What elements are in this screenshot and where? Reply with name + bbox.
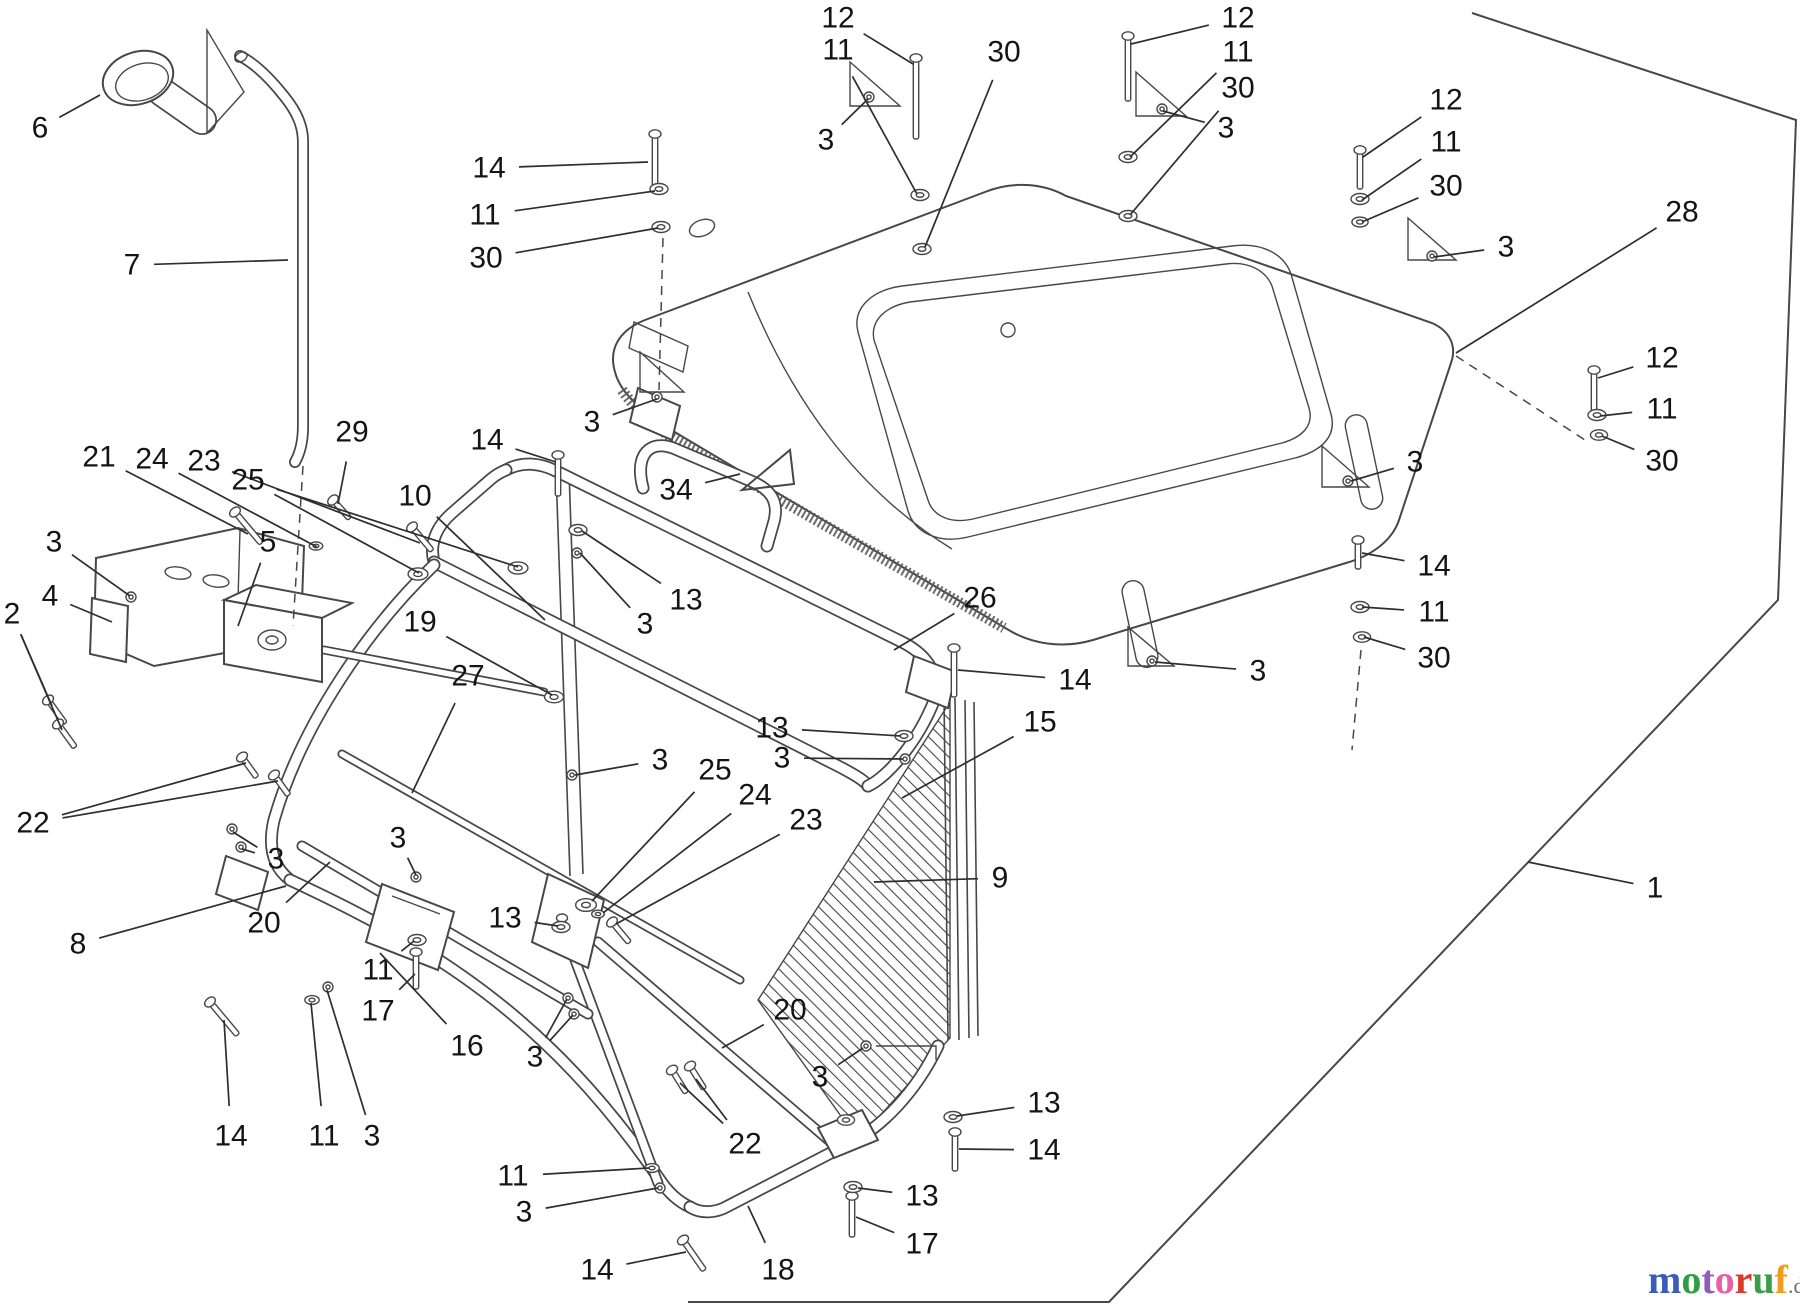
callout-label: 25 xyxy=(231,464,264,497)
callout-label: 9 xyxy=(992,862,1009,895)
nut-icon xyxy=(227,824,237,834)
callout-label: 34 xyxy=(659,474,692,507)
bolt-icon xyxy=(1354,146,1366,189)
bolt-icon xyxy=(1588,366,1600,413)
callout-label: 4 xyxy=(42,580,59,613)
callout-label: 3 xyxy=(364,1120,381,1153)
callout-leader xyxy=(626,1252,686,1264)
callout-label: 3 xyxy=(1218,112,1235,145)
callout-label: 1 xyxy=(1647,872,1664,905)
callout-label: 13 xyxy=(1027,1087,1060,1120)
callout-label: 30 xyxy=(1645,445,1678,478)
callout-label: 5 xyxy=(260,526,277,559)
callout-label: 30 xyxy=(1429,170,1462,203)
watermark-letter: o xyxy=(1715,1257,1735,1302)
washer-icon xyxy=(944,1112,962,1123)
hood-vent-hole xyxy=(687,216,717,240)
callout-label: 3 xyxy=(46,526,63,559)
callout-label: 11 xyxy=(469,199,500,232)
callout-leader xyxy=(59,95,100,117)
bolt-icon xyxy=(846,1192,858,1237)
callout-label: 13 xyxy=(905,1180,938,1213)
callout-label: 14 xyxy=(470,424,503,457)
callout-label: 21 xyxy=(82,441,115,474)
callout-label: 12 xyxy=(1221,2,1254,35)
callout-label: 14 xyxy=(472,152,505,185)
callout-label: 14 xyxy=(214,1120,247,1153)
watermark-letter: t xyxy=(1701,1257,1714,1302)
callout-leader xyxy=(603,813,731,913)
watermark-logo: motoruf.de xyxy=(1648,1260,1800,1300)
callout-label: 14 xyxy=(580,1254,613,1287)
callout-label: 16 xyxy=(450,1030,483,1063)
hood-outline xyxy=(613,185,1453,645)
callout-label: 3 xyxy=(390,822,407,855)
callout-label: 25 xyxy=(698,754,731,787)
washer-icon xyxy=(508,562,528,574)
callout-leader xyxy=(802,730,901,736)
washer-icon xyxy=(1590,430,1607,440)
callout-label: 18 xyxy=(761,1254,794,1287)
callout-label: 11 xyxy=(362,954,393,987)
callout-label: 13 xyxy=(755,712,788,745)
callout-label: 12 xyxy=(821,2,854,35)
callout-leader xyxy=(1362,198,1418,222)
washer-icon xyxy=(569,525,587,536)
washer-icon xyxy=(911,190,929,201)
callout-label: 17 xyxy=(905,1228,938,1261)
callout-label: 3 xyxy=(1407,446,1424,479)
callout-leader xyxy=(519,162,648,167)
grip-knob xyxy=(96,42,202,120)
callout-label: 14 xyxy=(1058,664,1091,697)
callout-label: 24 xyxy=(135,443,168,476)
callout-label: 11 xyxy=(1430,126,1461,159)
callout-leader xyxy=(550,1015,573,1041)
swing-arm-tube-core xyxy=(575,960,658,1183)
callout-label: 30 xyxy=(469,242,502,275)
callout-label: 12 xyxy=(1645,342,1678,375)
strap-bottom-plate xyxy=(532,874,604,968)
callout-leader xyxy=(1362,159,1421,200)
callout-leader xyxy=(1363,117,1421,157)
callout-leader xyxy=(1130,73,1216,157)
callout-leader xyxy=(546,1188,658,1208)
left-pivot-plate xyxy=(216,856,268,910)
callout-label: 30 xyxy=(987,36,1020,69)
callout-leader xyxy=(516,228,658,253)
rim-corner-plate xyxy=(906,656,956,708)
callout-leader xyxy=(154,260,288,264)
callout-leader xyxy=(515,191,655,211)
callout-label: 8 xyxy=(70,928,87,961)
watermark-letter: f xyxy=(1775,1257,1788,1302)
watermark-letter: o xyxy=(1681,1257,1701,1302)
callout-label: 3 xyxy=(516,1196,533,1229)
washer-icon xyxy=(1352,217,1368,227)
callout-label: 20 xyxy=(247,907,280,940)
callout-leader xyxy=(1362,553,1404,561)
callout-label: 11 xyxy=(497,1160,528,1193)
callout-leader xyxy=(327,990,366,1115)
mount-bracket-assembly xyxy=(90,528,352,682)
strap-edge xyxy=(556,472,570,876)
callout-leader xyxy=(722,1025,764,1048)
callout-label: 11 xyxy=(822,34,853,67)
callout-label: 3 xyxy=(637,608,654,641)
rod-tube-core xyxy=(240,56,303,462)
exploded-parts-diagram: 6714113012113031211303121130328121130314… xyxy=(0,0,1800,1314)
callout-leader xyxy=(412,703,455,793)
washer-icon xyxy=(844,1182,862,1193)
callout-label: 11 xyxy=(1646,393,1677,426)
washer-icon xyxy=(1351,194,1369,205)
callout-leader xyxy=(1602,436,1634,449)
callout-label: 28 xyxy=(1665,196,1698,229)
callout-leader xyxy=(804,758,903,759)
callout-leader xyxy=(696,1079,727,1120)
washer-icon xyxy=(913,244,931,255)
callout-label: 11 xyxy=(1222,36,1253,69)
support-rod xyxy=(233,50,303,462)
callout-label: 23 xyxy=(187,445,220,478)
callout-label: 7 xyxy=(124,249,141,282)
washer-icon xyxy=(552,922,570,933)
callout-label: 3 xyxy=(774,742,791,775)
callout-label: 22 xyxy=(16,807,49,840)
callout-label: 14 xyxy=(1417,550,1450,583)
rear-panel-edge xyxy=(965,700,969,1038)
callout-label: 14 xyxy=(1027,1134,1060,1167)
watermark-suffix: .de xyxy=(1788,1273,1800,1298)
nut-icon xyxy=(563,993,573,1003)
callout-label: 23 xyxy=(789,804,822,837)
watermark-letter: r xyxy=(1735,1257,1753,1302)
callout-leader xyxy=(338,461,346,504)
bag-right-post-2 xyxy=(955,698,959,1040)
callout-label: 30 xyxy=(1417,642,1450,675)
bolt-icon xyxy=(410,948,422,989)
callout-leader xyxy=(958,670,1045,677)
callout-label: 6 xyxy=(32,112,49,145)
callout-leader xyxy=(959,1149,1014,1150)
washer-icon xyxy=(408,568,428,580)
bolt-icon xyxy=(203,995,243,1039)
nut-icon xyxy=(861,1041,871,1051)
callout-leader xyxy=(63,781,278,818)
callout-label: 3 xyxy=(1250,655,1267,688)
washer-icon xyxy=(652,222,670,233)
callout-leader xyxy=(858,1188,892,1192)
callout-leader xyxy=(582,531,661,583)
watermark-letter: u xyxy=(1752,1257,1774,1302)
callout-leader xyxy=(546,999,567,1038)
callout-leader xyxy=(616,834,780,924)
callout-label: 3 xyxy=(1498,231,1515,264)
callout-leader xyxy=(1131,25,1209,44)
callout-leader xyxy=(842,99,868,125)
callout-label: 12 xyxy=(1429,84,1462,117)
callout-label: 15 xyxy=(1023,706,1056,739)
callout-label: 3 xyxy=(812,1061,829,1094)
callout-leader xyxy=(957,1107,1014,1116)
callout-leader xyxy=(543,1168,649,1174)
spacer-block xyxy=(90,598,128,662)
callout-label: 24 xyxy=(738,779,771,812)
callout-label: 26 xyxy=(963,582,996,615)
bolt-icon xyxy=(649,130,661,187)
watermark-letter: m xyxy=(1648,1257,1681,1302)
hood-cover xyxy=(613,185,1453,669)
callout-leader xyxy=(852,76,917,194)
callout-leader xyxy=(580,553,630,608)
callout-leader xyxy=(126,471,248,534)
callout-label: 3 xyxy=(818,124,835,157)
callout-leader xyxy=(1456,228,1657,353)
rear-panel-edge-2 xyxy=(974,702,978,1036)
callout-label: 13 xyxy=(488,902,521,935)
callout-label: 10 xyxy=(398,480,431,513)
callout-leader xyxy=(408,858,416,875)
callout-leader xyxy=(224,1020,229,1106)
callout-label: 3 xyxy=(527,1041,544,1074)
callout-label: 11 xyxy=(308,1120,339,1153)
callout-leader xyxy=(864,34,913,64)
pivot-stub-tube-core xyxy=(324,650,544,692)
callout-label: 3 xyxy=(268,843,285,876)
callout-leader xyxy=(592,792,694,901)
callout-leader xyxy=(21,634,62,730)
assembly-dash-hood-frame xyxy=(1352,650,1361,750)
callout-leader xyxy=(277,489,518,567)
callout-leader xyxy=(1598,367,1633,378)
knob-body-core xyxy=(162,92,202,120)
callout-leader xyxy=(1528,862,1633,884)
callout-label: 22 xyxy=(728,1128,761,1161)
callout-label: 30 xyxy=(1221,72,1254,105)
washer-icon xyxy=(592,910,605,918)
callout-label: 20 xyxy=(773,994,806,1027)
callout-label: 13 xyxy=(669,584,702,617)
callout-leader xyxy=(62,763,246,815)
washer-icon xyxy=(837,1115,854,1125)
callout-leader xyxy=(1130,111,1219,215)
assembly-dash-hood-right xyxy=(1456,356,1588,442)
nut-icon xyxy=(1147,656,1157,666)
callout-label: 11 xyxy=(1418,596,1449,629)
washer-icon xyxy=(1353,632,1370,642)
callout-leader xyxy=(894,614,954,650)
callout-leader xyxy=(1434,250,1484,257)
callout-label: 29 xyxy=(335,416,368,449)
callout-label: 3 xyxy=(584,406,601,439)
washer-icon xyxy=(305,996,319,1005)
callout-leader xyxy=(748,1206,765,1243)
callout-label: 19 xyxy=(403,606,436,639)
callout-leader xyxy=(311,1003,321,1106)
bolt-icon xyxy=(1122,32,1134,101)
callout-leader xyxy=(856,1217,894,1233)
callout-leader xyxy=(575,764,638,775)
washer-icon xyxy=(1119,211,1137,222)
callout-label: 17 xyxy=(361,995,394,1028)
callout-leader xyxy=(1364,637,1405,649)
callout-label: 2 xyxy=(4,598,21,631)
callout-label: 3 xyxy=(652,744,669,777)
washer-icon xyxy=(650,184,668,195)
bolt-icon xyxy=(910,54,922,139)
callout-label: 27 xyxy=(451,660,484,693)
parts-diagram-page: 6714113012113031211303121130328121130314… xyxy=(0,0,1800,1314)
